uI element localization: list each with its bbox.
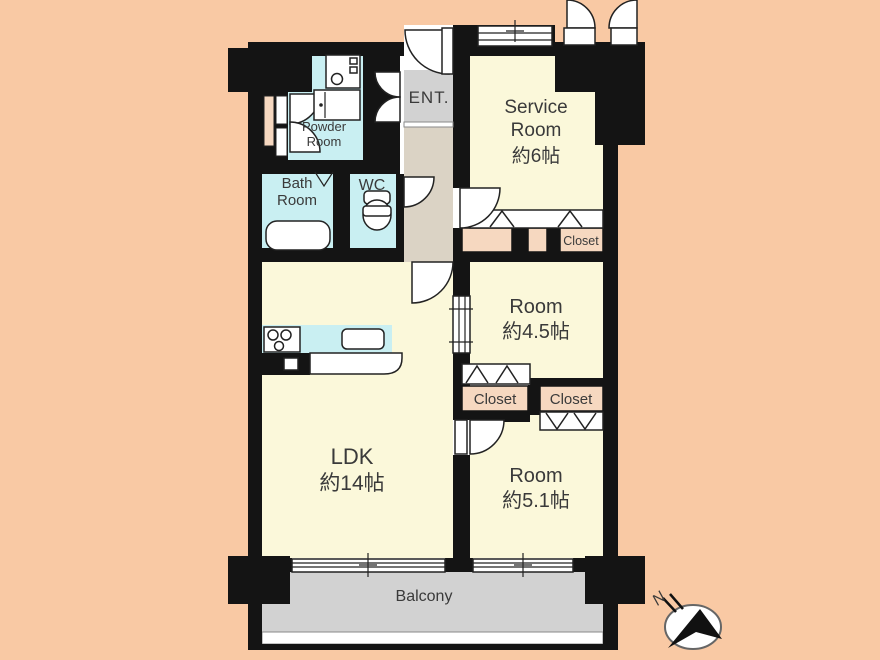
room-4-5-label: Room [509,296,562,318]
closet-cell [462,228,512,252]
wall [512,228,528,252]
bath-room-label: Room [277,192,317,209]
balcony-railing [262,632,603,644]
stove-burner-icon [275,342,284,351]
service-room-label: Room [511,120,562,141]
room-4-5-size-label: 約4.5帖 [502,320,570,343]
wall [603,92,618,565]
closet-cell [528,228,547,252]
wall [453,56,470,188]
wall [248,644,618,650]
room-5-1-size-label: 約5.1帖 [502,489,570,512]
meter-box [276,96,287,124]
service-room-label: Service [504,97,567,118]
room-4-5-floor [470,262,603,378]
powder-room-label: Room [307,134,342,149]
ldk-label: LDK [331,444,374,469]
structural-column [228,556,290,604]
wall [262,160,363,174]
floor-plan-canvas: Powder Room ENT. Service Room 約6帖 Bath R… [0,0,880,660]
wall [603,572,618,648]
ldk-floor [262,262,453,558]
wall [595,92,645,145]
room-5-1-label: Room [509,465,562,487]
meter-box [264,96,274,146]
wall [547,228,560,252]
wall [453,252,603,262]
balcony-label: Balcony [396,588,453,605]
wall [453,455,470,558]
washer-control-icon [350,67,357,73]
sliding-door [453,296,470,353]
sink-icon [342,329,384,349]
service-room-size-label: 約6帖 [512,145,561,167]
vanity-handle-icon [319,103,323,107]
closet-left-label: Closet [474,391,517,408]
entrance-step [404,122,453,127]
wall [228,48,312,92]
kitchen-counter-edge [310,353,402,374]
service-closet-label: Closet [563,234,599,248]
stove-burner-icon [268,330,278,340]
door-leaf [455,420,467,454]
ldk-size-label: 約14帖 [319,472,384,495]
bath-room-label: Bath [282,175,313,192]
wall [333,174,350,248]
toilet-seat-icon [363,206,391,216]
washer-control-icon [350,58,357,64]
wall [555,42,645,92]
wall [453,262,470,297]
powder-room-label: Powder [302,119,347,134]
wc-label: WC [359,177,386,194]
washing-machine-drum-icon [332,74,343,85]
kitchen-cabinet-icon [284,358,298,370]
floor-plan: Powder Room ENT. Service Room 約6帖 Bath R… [0,0,880,660]
bathtub-icon [266,221,330,250]
meter-box [276,128,287,156]
door-leaf [564,28,595,45]
entrance-door-leaf [442,28,453,74]
entrance-label: ENT. [409,88,450,107]
stove-burner-icon [281,330,291,340]
door-leaf [611,28,637,45]
wall [445,558,473,572]
closet-right-label: Closet [550,391,593,408]
